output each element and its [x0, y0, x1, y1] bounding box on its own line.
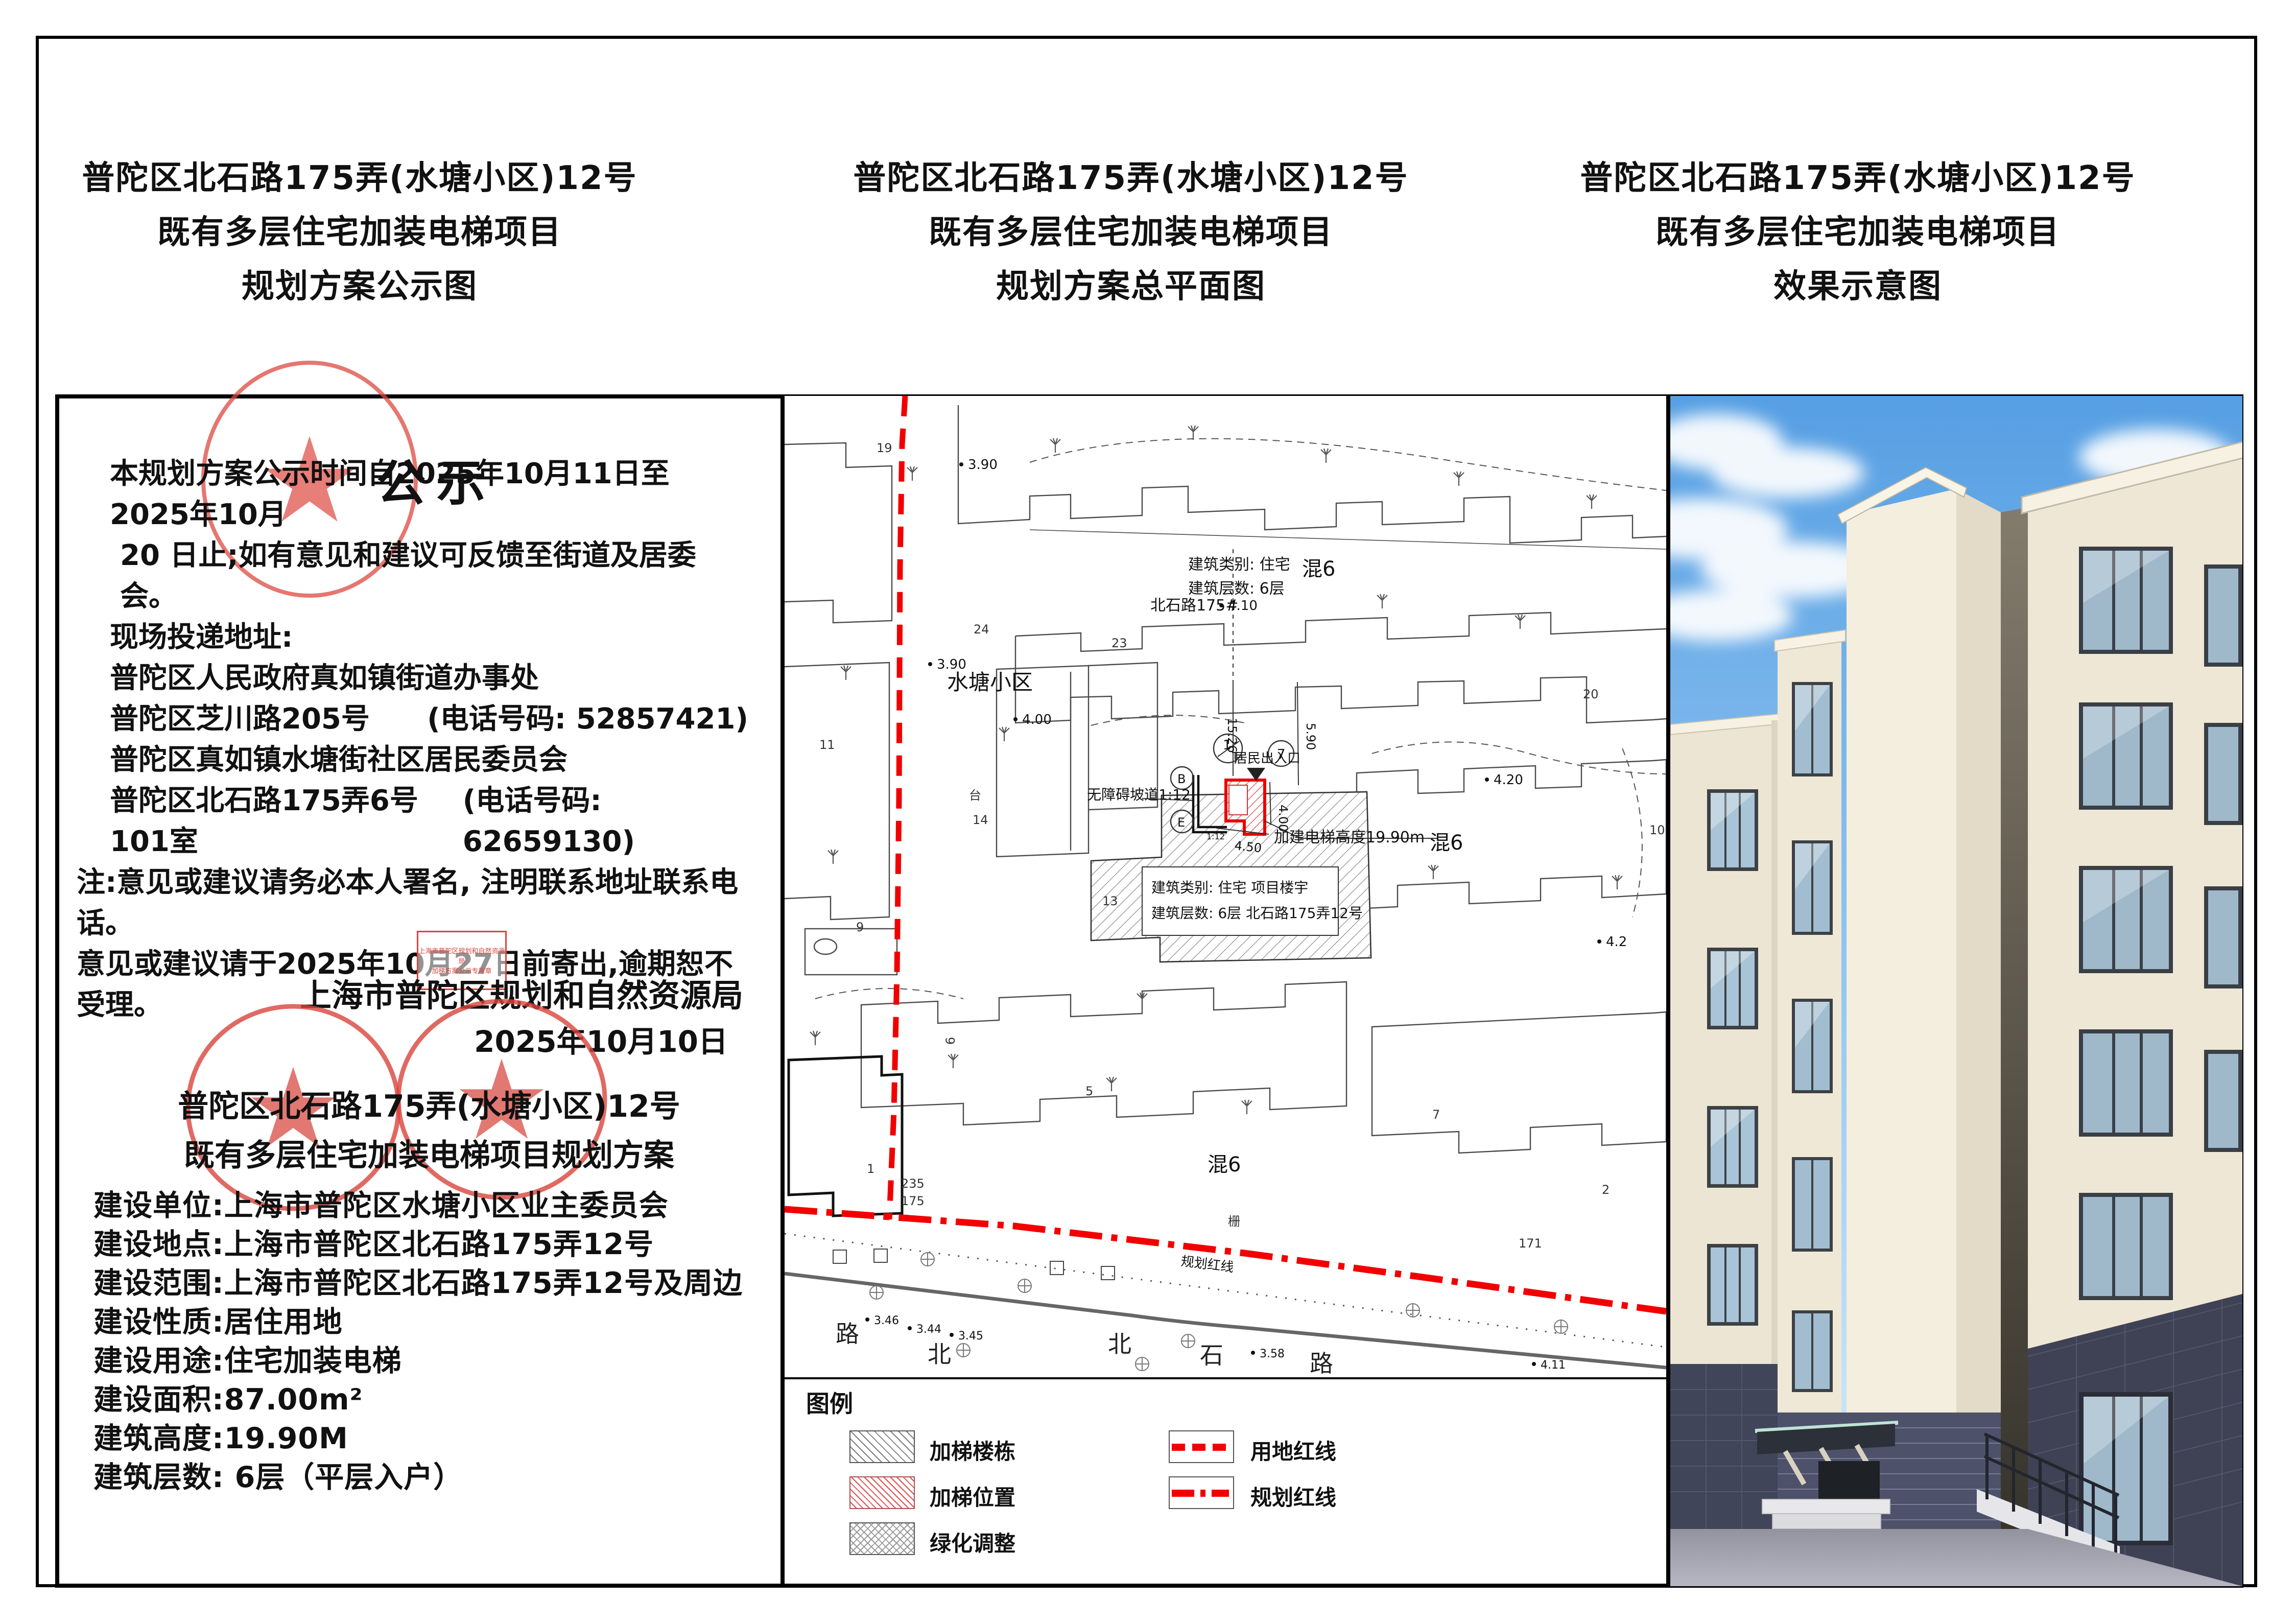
- address-row: 普陀区北石路175弄6号101室 (电话号码: 62659130): [110, 781, 748, 862]
- step: [1762, 1499, 1890, 1514]
- title-line: 既有多层住宅加装电梯项目: [850, 205, 1412, 260]
- ramp-label: 无障碍坡道1:12: [1087, 786, 1191, 803]
- rect-stamp-line: 上海市普陀区规划和自然资源局: [418, 947, 505, 967]
- project-annotation-line: 建筑层数: 6层 北石路175弄12号: [1151, 905, 1363, 922]
- notice-paragraph: 现场投递地址:: [110, 617, 748, 658]
- title-line: 效果示意图: [1577, 260, 2139, 314]
- legend-label: 用地红线: [1250, 1434, 1336, 1466]
- project-info-list: 建设单位:上海市普陀区水塘小区业主委员会 建设地点:上海市普陀区北石路175弄1…: [93, 1186, 768, 1497]
- address-phone: (电话号码: 52857421): [427, 699, 748, 740]
- svg-text:11: 11: [819, 738, 835, 752]
- road-name-char: 路: [836, 1320, 859, 1348]
- road-name-char: 石: [1200, 1341, 1223, 1369]
- svg-text:171: 171: [1519, 1236, 1542, 1251]
- svg-text:6: 6: [943, 1037, 958, 1045]
- road-block-label: 北石路175#: [1150, 597, 1238, 615]
- left-wing-edge-shade: [1771, 720, 1778, 1367]
- building-annotation: 建筑类别: 住宅: [1188, 556, 1290, 574]
- dim-label: 4.50: [1234, 838, 1262, 855]
- title-line: 既有多层住宅加装电梯项目: [79, 205, 641, 260]
- info-line: 建筑层数: 6层（平层入户）: [93, 1458, 768, 1497]
- project-title-line: 普陀区北石路175弄(水塘小区)12号: [110, 1082, 748, 1131]
- site-plan-drawing: 建筑类别: 住宅 项目楼宇 建筑层数: 6层 北石路175弄12号 1:12 1…: [785, 396, 1666, 1377]
- panel-divider-left: [780, 394, 785, 1588]
- address-row: 普陀区真如镇水塘街社区居民委员会: [110, 740, 748, 781]
- svg-text:235: 235: [901, 1176, 925, 1191]
- svg-text:24: 24: [974, 622, 989, 637]
- project-title-overlay: 普陀区北石路175弄(水塘小区)12号 既有多层住宅加装电梯项目规划方案: [110, 1082, 748, 1180]
- svg-text:175: 175: [901, 1194, 925, 1208]
- legend-swatch-planning-redline: [1169, 1476, 1234, 1509]
- road-name-char: 北: [1108, 1330, 1131, 1358]
- step: [1772, 1514, 1881, 1529]
- red-dashdot-line-icon: [1172, 1490, 1229, 1497]
- svg-text:4.20: 4.20: [1494, 772, 1523, 788]
- dim-label: 5.90: [1304, 723, 1318, 750]
- legend-swatch-land-redline: [1169, 1430, 1234, 1463]
- elevator-height-label: 加建电梯高度19.90m: [1274, 829, 1425, 846]
- mix6-label: 混6: [1208, 1153, 1241, 1176]
- address-phone: (电话号码: 62659130): [463, 781, 748, 862]
- legend-label: 规划红线: [1250, 1480, 1336, 1512]
- dim-label: 15.26: [1225, 718, 1239, 753]
- legend-separator: [785, 1377, 1668, 1379]
- entrance-label: 居民出入口: [1234, 751, 1300, 766]
- info-line: 建设性质:居住用地: [93, 1303, 768, 1341]
- red-dash-line-icon: [1172, 1444, 1229, 1451]
- elevator-inner: [1229, 785, 1247, 815]
- legend-swatch-building: [849, 1430, 915, 1463]
- svg-text:23: 23: [1111, 636, 1127, 650]
- mix6-label: 混6: [1430, 831, 1463, 855]
- svg-text:3.45: 3.45: [958, 1330, 983, 1343]
- panel-divider-right: [1666, 394, 1670, 1588]
- title-left-panel: 普陀区北石路175弄(水塘小区)12号 既有多层住宅加装电梯项目 规划方案公示图: [79, 151, 641, 314]
- building-annotation: 建筑层数: 6层: [1188, 580, 1285, 598]
- svg-text:4.2: 4.2: [1606, 934, 1627, 950]
- legend-label: 加梯位置: [930, 1480, 1015, 1512]
- address-row: 普陀区人民政府真如镇街道办事处: [110, 658, 748, 699]
- svg-text:20: 20: [1583, 687, 1599, 701]
- project-annotation-line: 建筑类别: 住宅 项目楼宇: [1151, 879, 1308, 896]
- marker-label: B: [1177, 772, 1186, 786]
- svg-text:10: 10: [1649, 823, 1665, 837]
- svg-text:4.10: 4.10: [1228, 598, 1258, 614]
- svg-text:14: 14: [973, 813, 988, 827]
- legend-swatch-elevator: [849, 1476, 915, 1509]
- svg-text:19: 19: [877, 441, 892, 455]
- info-line: 建设面积:87.00m²: [93, 1380, 768, 1419]
- elevator-shaft: [1847, 489, 1956, 1529]
- svg-text:3.46: 3.46: [874, 1314, 899, 1327]
- svg-text:1: 1: [867, 1162, 874, 1176]
- svg-text:3.58: 3.58: [1260, 1348, 1285, 1360]
- title-line: 普陀区北石路175弄(水塘小区)12号: [1577, 151, 2139, 205]
- legend-label: 加梯楼栋: [930, 1434, 1015, 1466]
- title-right-panel: 普陀区北石路175弄(水塘小区)12号 既有多层住宅加装电梯项目 效果示意图: [1577, 151, 2139, 314]
- address-name: 普陀区北石路175弄6号101室: [110, 781, 463, 862]
- svg-text:13: 13: [1102, 894, 1118, 908]
- title-line: 普陀区北石路175弄(水塘小区)12号: [850, 151, 1412, 205]
- info-line: 建设用途:住宅加装电梯: [93, 1341, 768, 1380]
- svg-text:2: 2: [1602, 1183, 1610, 1197]
- legend-label: 绿化调整: [930, 1526, 1015, 1558]
- ramp-slope-label: 1:12: [1206, 832, 1225, 841]
- mix6-label: 混6: [1302, 557, 1335, 581]
- address-row: 普陀区芝川路205号 (电话号码: 52857421): [110, 699, 748, 740]
- svg-text:7: 7: [1432, 1108, 1440, 1122]
- info-line: 建设地点:上海市普陀区北石路175弄12号: [93, 1225, 768, 1264]
- title-middle-panel: 普陀区北石路175弄(水塘小区)12号 既有多层住宅加装电梯项目 规划方案总平面…: [850, 151, 1412, 314]
- title-line: 普陀区北石路175弄(水塘小区)12号: [79, 151, 641, 205]
- project-title-line: 既有多层住宅加装电梯项目规划方案: [110, 1131, 748, 1180]
- svg-text:4.00: 4.00: [1022, 712, 1052, 727]
- address-name: 普陀区人民政府真如镇街道办事处: [110, 658, 539, 699]
- svg-text:3.44: 3.44: [916, 1323, 941, 1336]
- title-line: 规划方案总平面图: [850, 260, 1412, 314]
- road-name-char: 路: [1310, 1350, 1333, 1377]
- project-annotation-box: [1142, 867, 1338, 935]
- estate-name-label: 水塘小区: [947, 670, 1033, 695]
- building-rendering: [1670, 396, 2242, 1586]
- shaft-side-face: [1956, 489, 2001, 1529]
- svg-text:3.90: 3.90: [937, 657, 966, 672]
- address-name: 普陀区芝川路205号: [110, 699, 370, 740]
- notice-paragraph: 20 日止;如有意见和建议可反馈至街道及居委会。: [110, 535, 748, 617]
- info-line: 建设单位:上海市普陀区水塘小区业主委员会: [93, 1186, 768, 1225]
- dim-label: 4.00: [1276, 805, 1290, 832]
- svg-text:台: 台: [969, 788, 981, 803]
- notice-note: 注:意见或建议请务必本人署名, 注明联系地址联系电话。: [77, 862, 748, 944]
- svg-text:4.11: 4.11: [1541, 1359, 1566, 1372]
- info-line: 建筑高度:19.90M: [93, 1419, 768, 1458]
- legend-title: 图例: [806, 1385, 853, 1419]
- shadow-gap: [2001, 507, 2028, 1529]
- marker-label: E: [1177, 815, 1185, 830]
- svg-text:5: 5: [1085, 1084, 1093, 1098]
- svg-text:3.90: 3.90: [968, 457, 998, 473]
- legend-swatch-greenery: [849, 1522, 915, 1555]
- svg-text:9: 9: [856, 920, 864, 934]
- info-line: 建设范围:上海市普陀区北石路175弄12号及周边: [93, 1264, 768, 1303]
- title-line: 规划方案公示图: [79, 260, 641, 314]
- address-name: 普陀区真如镇水塘街社区居民委员会: [110, 740, 567, 781]
- road-name-char: 北: [928, 1340, 951, 1368]
- title-line: 既有多层住宅加装电梯项目: [1577, 205, 2139, 260]
- svg-text:栅: 栅: [1228, 1214, 1240, 1229]
- notice-paragraph: 本规划方案公示时间自2025年10月11日至2025年10月: [110, 454, 748, 535]
